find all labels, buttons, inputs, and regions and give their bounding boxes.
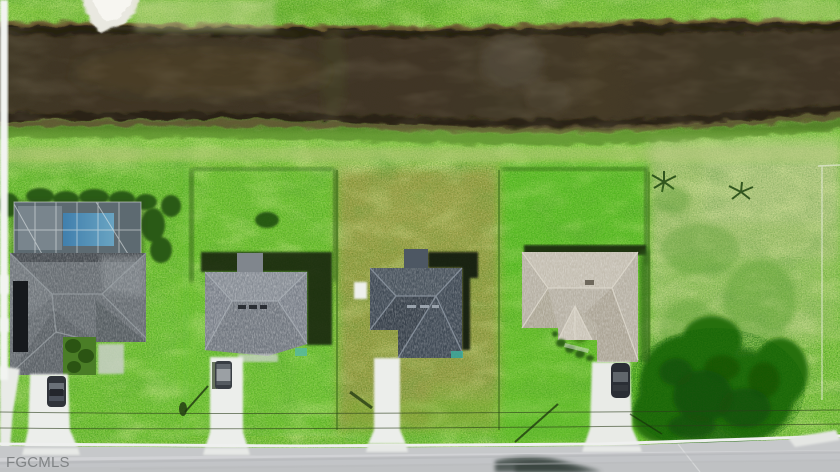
svg-text:FGCMLS: FGCMLS xyxy=(6,454,70,471)
